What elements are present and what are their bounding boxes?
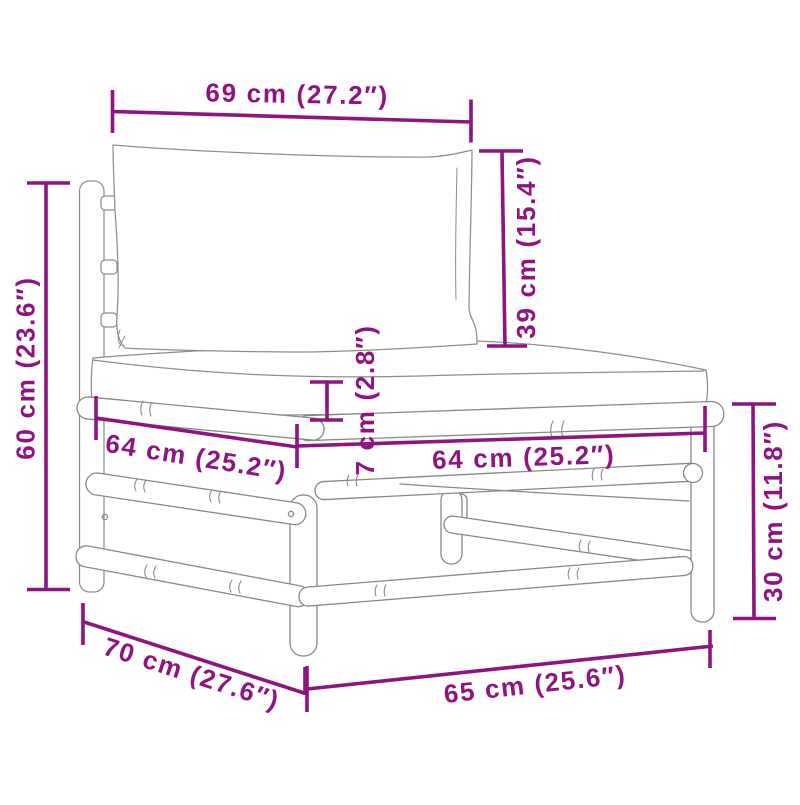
svg-text:7 cm (2.8″): 7 cm (2.8″) [350, 324, 380, 475]
svg-text:69 cm (27.2″): 69 cm (27.2″) [205, 77, 389, 110]
svg-text:30 cm (11.8″): 30 cm (11.8″) [758, 420, 788, 602]
svg-text:60 cm (23.6″): 60 cm (23.6″) [11, 276, 41, 459]
svg-text:39 cm (15.4″): 39 cm (15.4″) [511, 155, 541, 338]
svg-text:64 cm (25.2″): 64 cm (25.2″) [432, 439, 616, 475]
